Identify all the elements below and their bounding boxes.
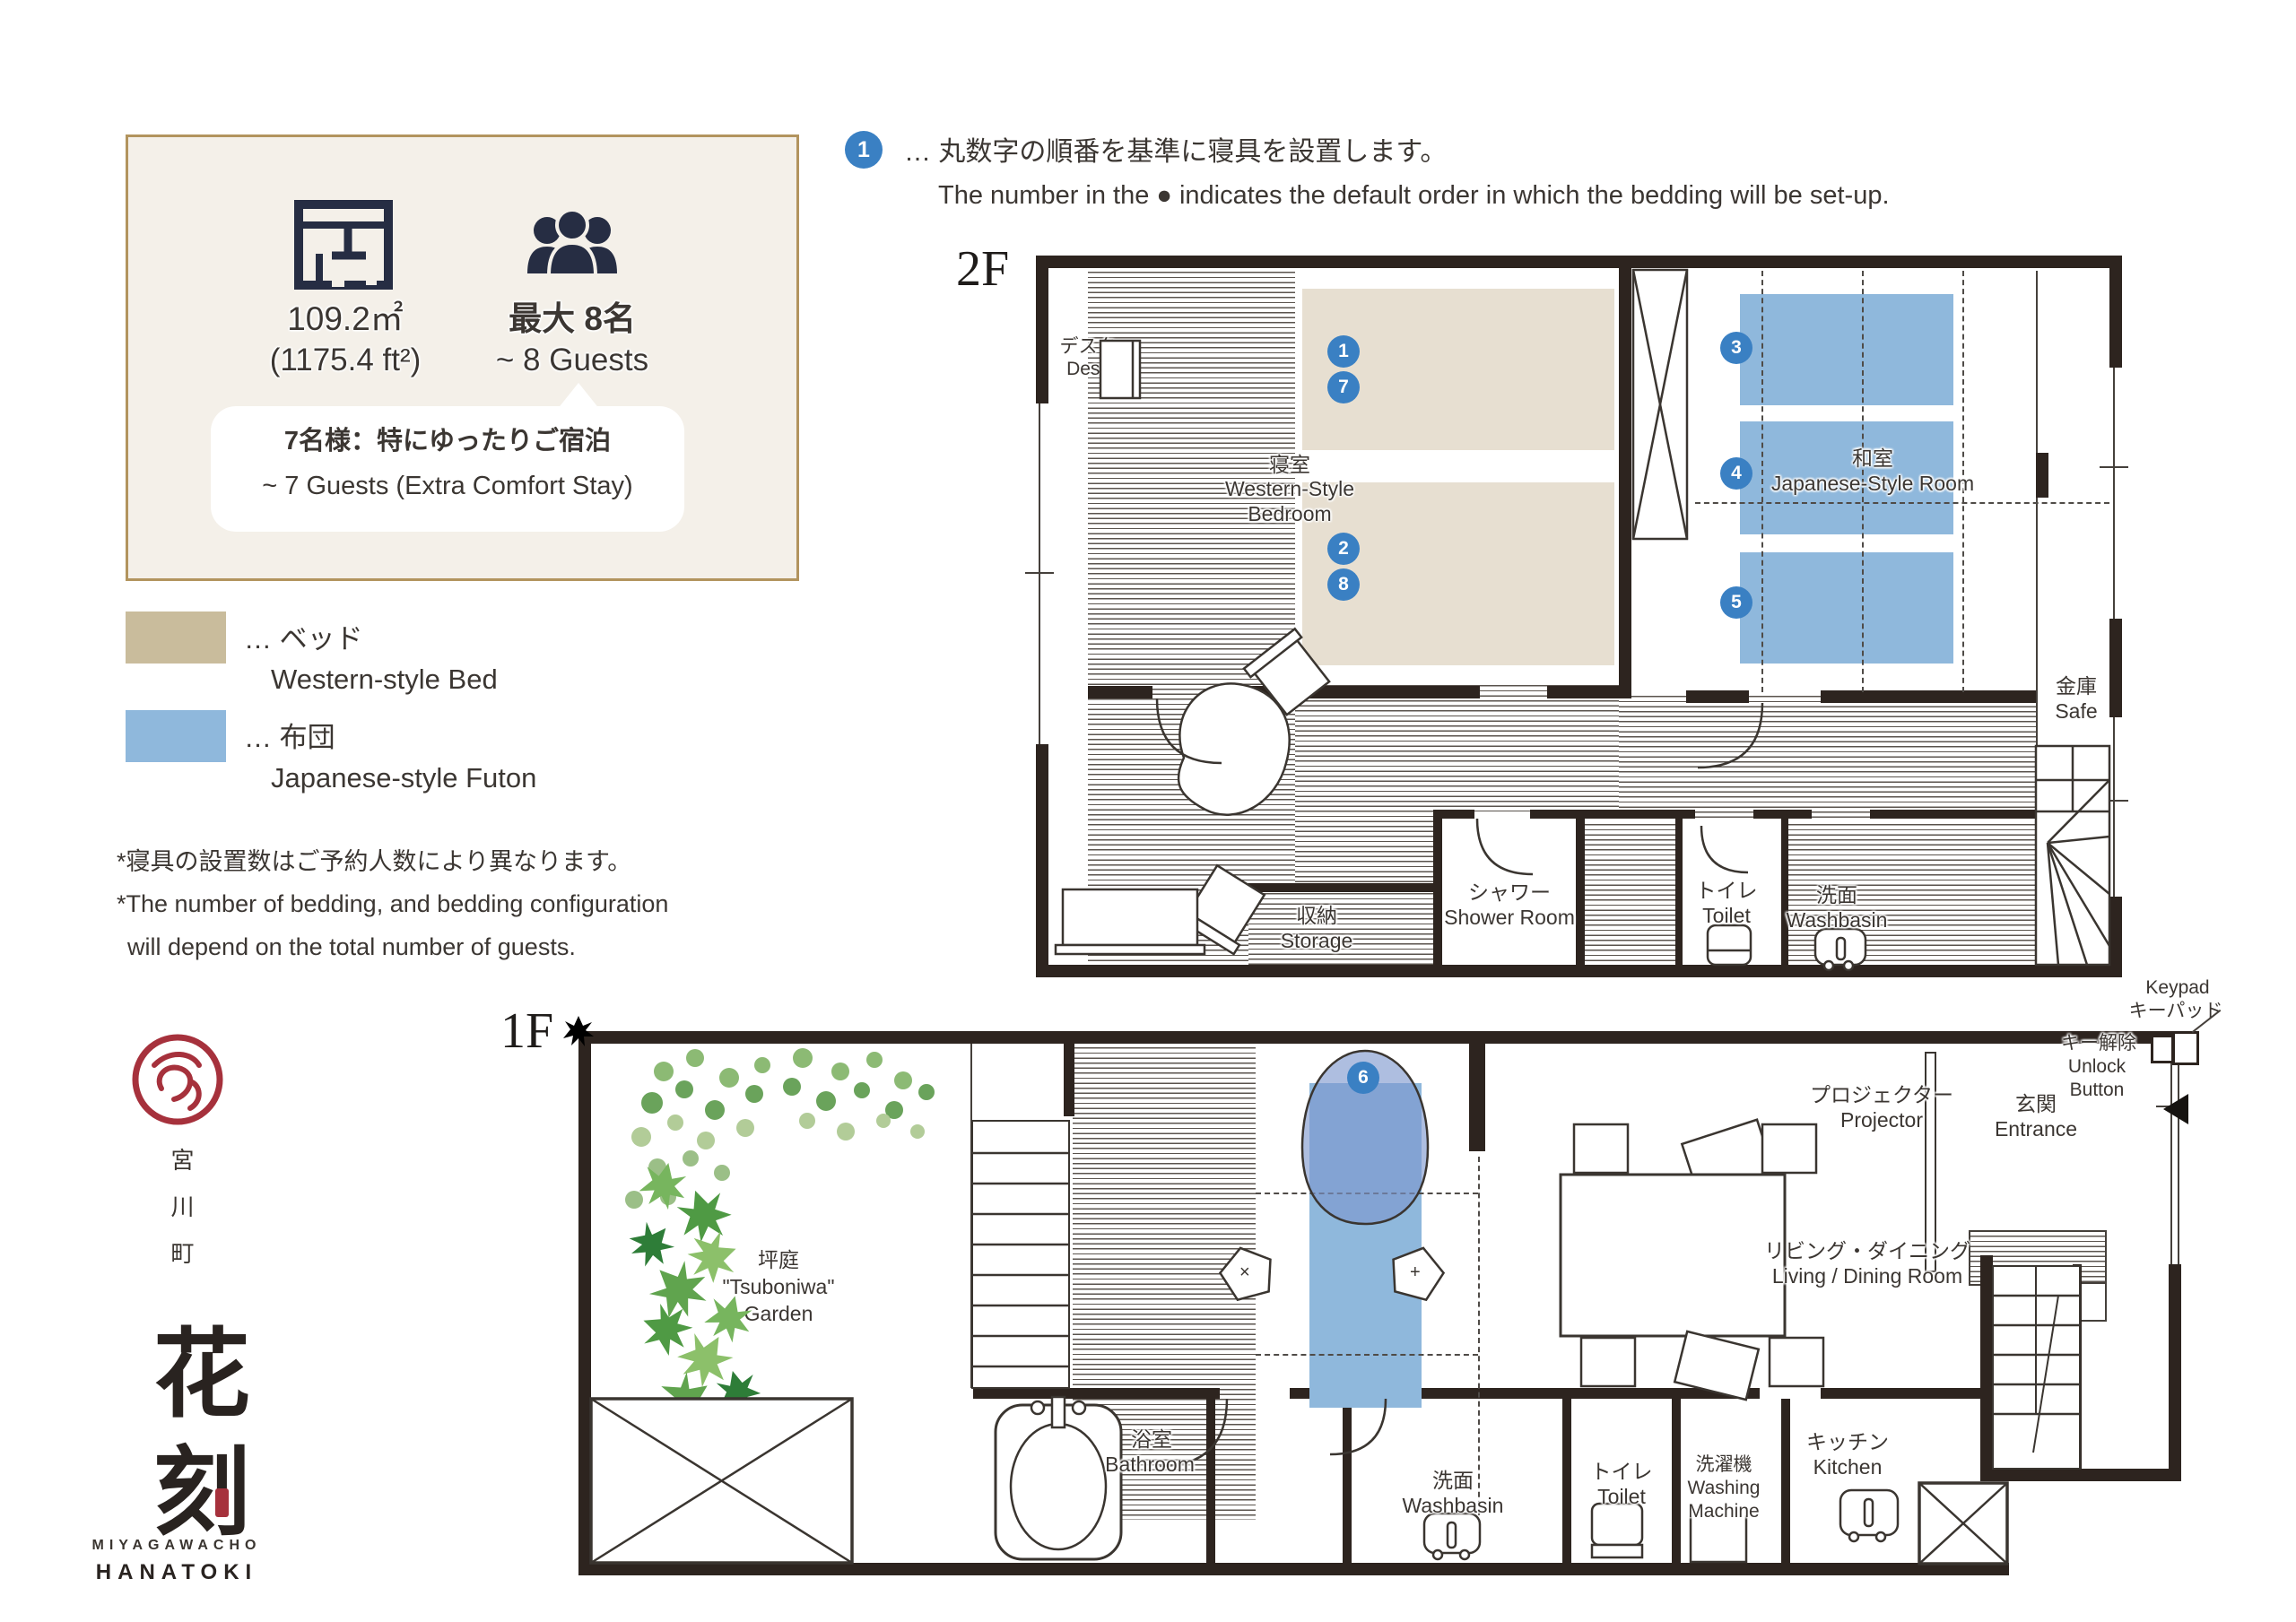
f2-washitsu-label-jp: 和室	[1852, 447, 1893, 470]
floor1-label: 1F	[500, 1002, 553, 1060]
f1-projector-label-en: Projector	[1840, 1108, 1923, 1132]
bed-order-badge-7: 7	[1327, 371, 1360, 403]
legend-bed-swatch	[126, 612, 226, 664]
area-m2: 109.2㎡	[287, 300, 404, 338]
legend-futon-en: Japanese-style Futon	[271, 762, 536, 794]
legend-futon-swatch	[126, 710, 226, 762]
f1-washbasin-label-jp: 洗面	[1432, 1469, 1474, 1492]
comfort-jp: 7名様：特にゆったりご宿泊	[284, 426, 611, 456]
annotation-en: The number in the ● indicates the defaul…	[938, 179, 1890, 212]
f2-washbasin-label-jp: 洗面	[1816, 883, 1857, 906]
bed-order-badge-6: 6	[1347, 1062, 1379, 1094]
bed-order-badge-4: 4	[1720, 457, 1752, 490]
info-box: 109.2㎡ (1175.4 ft²) 最大 8名 ~ 8 Guests 7名様…	[126, 134, 799, 581]
legend-futon-jp: … 布団	[244, 722, 335, 754]
f2-shower-label-en: Shower Room	[1444, 906, 1575, 929]
brand-logo: 宮川町 花刻 MIYAGAWACHO HANATOKI	[90, 1022, 269, 1596]
f1-toilet-label-jp: トイレ	[1591, 1460, 1653, 1483]
comfort-bubble	[211, 406, 684, 532]
floorplan-sheet: 109.2㎡ (1175.4 ft²) 最大 8名 ~ 8 Guests 7名様…	[0, 0, 2296, 1622]
annotation-jp: … 丸数字の順番を基準に寝具を設置します。	[904, 136, 1447, 169]
annotation-badge: 1	[845, 131, 883, 169]
f1-living-label-en: Living / Dining Room	[1772, 1264, 1962, 1288]
note-en-2: will depend on the total number of guest…	[127, 932, 576, 961]
logo-emblem-icon	[127, 1029, 228, 1130]
floorplan-icon	[294, 200, 393, 290]
f2-washbasin-label-en: Washbasin	[1787, 908, 1888, 932]
f1-projector-label-jp: プロジェクター	[1810, 1083, 1953, 1106]
cushion-mark-left: ×	[1239, 1262, 1250, 1283]
capacity-en: ~ 8 Guests	[496, 342, 648, 379]
f2-bedroom-label-en1: Western-Style	[1225, 477, 1354, 500]
f2-storage-label-jp: 収納	[1296, 904, 1337, 927]
capacity-jp: 最大 8名	[509, 300, 636, 338]
bed-order-badge-3: 3	[1720, 332, 1752, 364]
f1-kitchen-label-en: Kitchen	[1813, 1455, 1883, 1479]
cushion-mark-right: +	[1410, 1262, 1421, 1283]
comfort-en: ~ 7 Guests (Extra Comfort Stay)	[262, 471, 632, 501]
f1-unlock-label-en2: Button	[2070, 1080, 2125, 1101]
logo-seal	[215, 1488, 229, 1517]
f2-bedroom-label-en2: Bedroom	[1248, 502, 1331, 525]
logo-district: 宮川町	[165, 1148, 198, 1288]
f2-washitsu-label-en: Japanese-Style Room	[1771, 472, 1974, 495]
bed-order-badge-5: 5	[1720, 586, 1752, 619]
f1-keypad-label-en: Keypad	[2145, 977, 2209, 999]
f2-shower-label-jp: シャワー	[1468, 880, 1551, 904]
f1-washing-label-jp: 洗濯機	[1696, 1454, 1752, 1476]
keypad-icon-2	[2172, 1031, 2199, 1065]
f2-toilet-label-jp: トイレ	[1696, 879, 1758, 902]
f2-toilet-label-en: Toilet	[1702, 904, 1751, 927]
legend-bed-en: Western-style Bed	[271, 664, 498, 696]
area-ft2: (1175.4 ft²)	[270, 342, 422, 379]
comfort-bubble-pointer	[557, 383, 600, 410]
keypad-icon	[2151, 1035, 2174, 1063]
f1-bathroom-label-jp: 浴室	[1131, 1427, 1172, 1451]
f2-storage-label-en: Storage	[1281, 929, 1353, 952]
note-jp: *寝具の設置数はご予約人数により異なります。	[117, 847, 631, 876]
f1-bathroom-label-en: Bathroom	[1105, 1453, 1195, 1476]
f2-bedroom-label-jp: 寝室	[1269, 453, 1310, 476]
guests-icon	[518, 207, 626, 282]
f1-washbasin-label-en: Washbasin	[1403, 1494, 1504, 1517]
f1-living-label-jp: リビング・ダイニング	[1764, 1239, 1970, 1262]
bed-order-badge-1: 1	[1327, 335, 1360, 368]
f1-toilet-label-en: Toilet	[1597, 1485, 1646, 1508]
legend-bed-jp: … ベッド	[244, 623, 363, 655]
bed-order-badge-2: 2	[1327, 533, 1360, 565]
logo-roman-1: MIYAGAWACHO	[92, 1538, 262, 1554]
f1-washing-label-en1: Washing	[1688, 1478, 1761, 1499]
bed-order-badge-8: 8	[1327, 568, 1360, 601]
logo-name: 花刻	[124, 1323, 264, 1559]
f1-washing-label-en2: Machine	[1688, 1501, 1759, 1522]
f1-kitchen-label-jp: キッチン	[1806, 1430, 1889, 1453]
f1-unlock-label-en1: Unlock	[2068, 1056, 2126, 1078]
floor2-label: 2F	[956, 240, 1009, 298]
f2-details	[1036, 256, 2121, 977]
f1-unlock-label-jp: キー解除	[2061, 1033, 2136, 1054]
note-en-1: *The number of bedding, and bedding conf…	[117, 889, 668, 918]
f1-details	[578, 1031, 2181, 1575]
logo-roman-2: HANATOKI	[96, 1560, 257, 1585]
